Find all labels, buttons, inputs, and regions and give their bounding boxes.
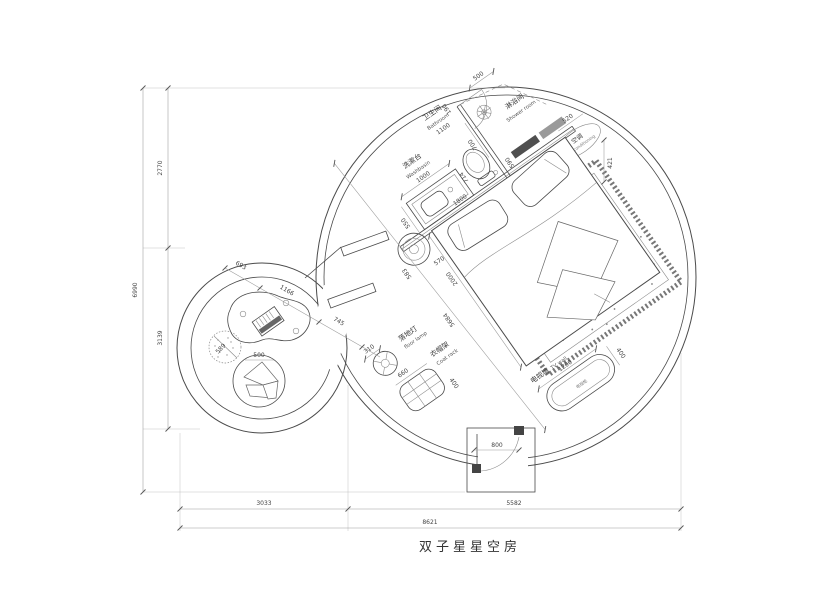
- lounge-room: 589 500 693 1166 745: [209, 260, 380, 407]
- floor-drain-icon: [473, 101, 495, 123]
- kidney-table: [228, 292, 310, 343]
- ac-dim: 520: [561, 112, 575, 124]
- upper-height-dim: 2770: [157, 160, 164, 175]
- total-width-dim: 8621: [422, 519, 437, 526]
- lounge-dim-1166: 1166: [278, 284, 295, 298]
- bedside-dim-570: 570: [433, 255, 447, 267]
- shower-entry-dim: 500: [472, 70, 486, 82]
- lower-height-dim: 3139: [157, 330, 164, 345]
- bedside-dim-583: 583: [401, 267, 413, 281]
- counter-depth-dim: 550: [400, 216, 412, 230]
- lounge-chair: 500: [233, 352, 285, 407]
- dim-700: 700: [467, 138, 479, 152]
- tvwall-dim-400: 400: [614, 347, 626, 361]
- shower-screen-bar: [511, 135, 540, 159]
- keyboard-tray: [252, 307, 284, 336]
- dim-590: 590: [504, 156, 516, 170]
- bed-length-dim: 2000: [445, 270, 460, 287]
- washbasin-sink: [419, 189, 450, 218]
- coatrack-dim-400: 400: [448, 377, 460, 391]
- entry-opening: [478, 447, 528, 472]
- entry-dim-800: 800: [491, 442, 503, 449]
- bottom-dim-3033: 3033: [256, 500, 271, 507]
- toilet-tank: [477, 170, 496, 186]
- floor-plan-page: 洗漱台 Washbasin 1000 550 714 卫生间 Bathroom …: [0, 0, 837, 592]
- faucet-icon: [447, 186, 454, 193]
- room-diagonal-dim: 5684: [442, 311, 457, 328]
- pouf-dim-589: 589: [214, 342, 227, 355]
- bottom-dim-5582: 5582: [506, 500, 521, 507]
- drawing-title: 双子星星空房: [419, 539, 521, 555]
- door-post-right: [514, 426, 524, 435]
- tv-wall: 电视柜: [541, 349, 620, 417]
- coatrack-dim-660: 660: [397, 367, 411, 379]
- lounge-dim-693: 693: [234, 260, 248, 272]
- tvwall-label-cn: 电视墙: [528, 366, 550, 385]
- dim-190: 190: [441, 102, 453, 116]
- left-dimension-column: 6990 2770 3139: [132, 86, 505, 495]
- flush-button: [493, 170, 499, 176]
- bed: [432, 137, 661, 367]
- total-height-dim: 6990: [132, 282, 139, 297]
- pouf-stool: 589: [209, 331, 241, 363]
- chair-dim-500: 500: [253, 352, 265, 359]
- dim-421: 421: [607, 157, 614, 169]
- bed-width-dim: 1800: [452, 193, 469, 208]
- towel-fold-1: [244, 362, 278, 385]
- corridor-wall: [305, 247, 341, 278]
- floor-plan-drawing: 洗漱台 Washbasin 1000 550 714 卫生间 Bathroom …: [0, 0, 837, 592]
- alcove-stub-wall-top: [341, 231, 389, 256]
- tv-cabinet-label: 电视柜: [574, 377, 588, 390]
- door-post-left: [472, 464, 481, 473]
